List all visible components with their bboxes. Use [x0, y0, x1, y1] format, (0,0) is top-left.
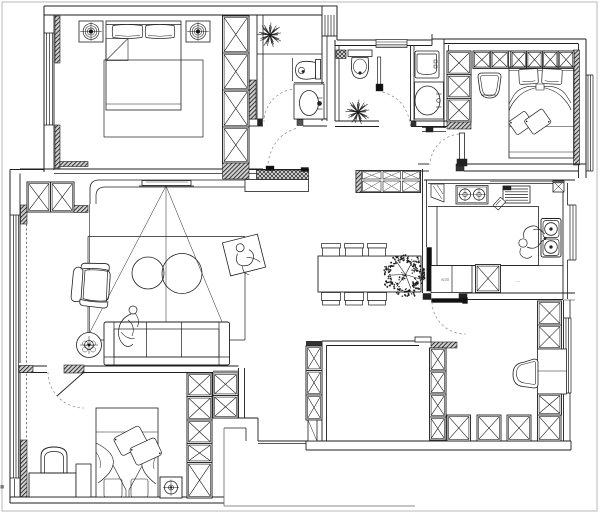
- svg-text:...: ...: [516, 278, 520, 284]
- svg-text:■: ■: [0, 484, 4, 491]
- svg-text:w30: w30: [441, 277, 450, 282]
